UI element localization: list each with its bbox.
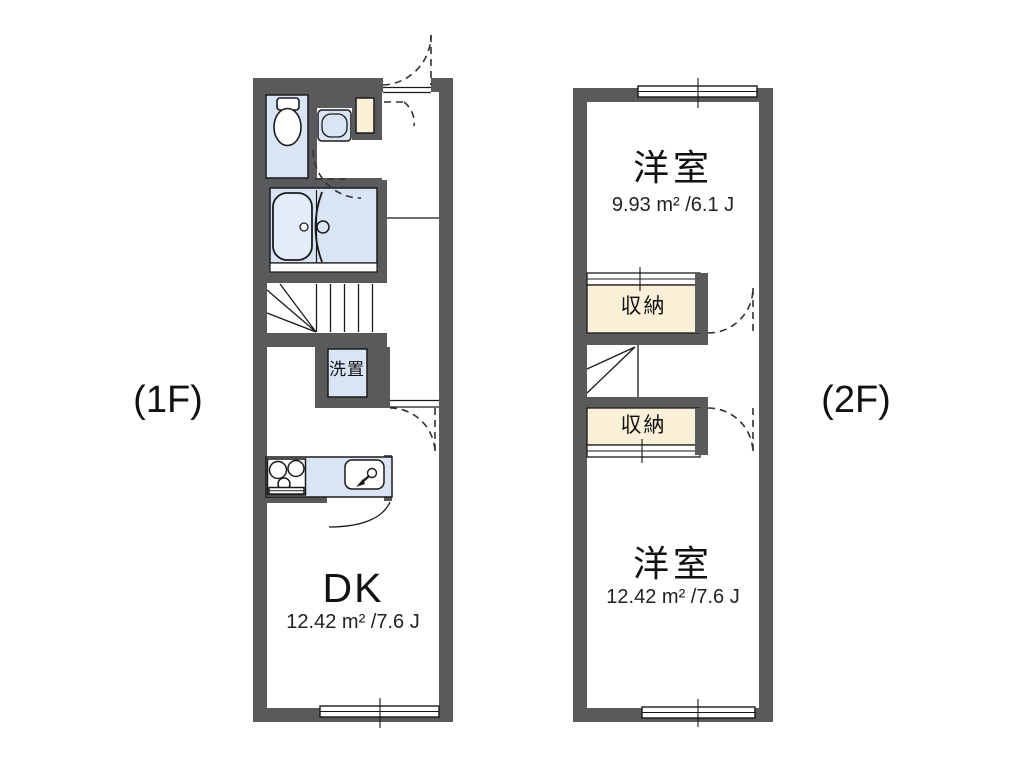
entry-inner-door	[384, 102, 414, 126]
storage-lower-top-wall	[573, 397, 708, 408]
upper-room-label: 洋室	[587, 148, 759, 188]
window-1f-bottom	[320, 698, 439, 728]
dk-door-arc	[390, 408, 435, 453]
laundry-label: 洗置	[324, 361, 370, 380]
floor2-label: (2F)	[796, 380, 916, 422]
storage-lower-door-arc	[708, 408, 753, 453]
bath-door-knob-icon	[317, 221, 329, 233]
lower-room-area: 12.42 m² /7.6 J	[587, 586, 759, 608]
stove-icon	[268, 459, 306, 495]
storage-lower-label: 収納	[587, 414, 700, 437]
kitchen-curve	[329, 502, 390, 527]
lower-room-label: 洋室	[587, 544, 759, 584]
window-2f-top	[638, 78, 757, 108]
bath-drain-icon	[300, 223, 308, 231]
storage-upper-label: 収納	[587, 295, 700, 318]
storage-upper-door-arc	[708, 288, 753, 333]
entrance-opening	[383, 77, 431, 93]
floor1-label: (1F)	[108, 380, 228, 422]
sink-icon	[345, 460, 384, 489]
storage-upper-bottom-wall	[573, 333, 708, 345]
window-2f-bottom	[642, 699, 755, 727]
floorplan-canvas: (1F) (2F) DK 12.42 m² /7.6 J 洗置 洋室 9.93 …	[0, 0, 1016, 772]
bath-step	[270, 263, 377, 272]
stair-bottom-wall	[267, 333, 387, 347]
dk-room-area: 12.42 m² /7.6 J	[247, 611, 459, 633]
washroom-side-floor	[352, 140, 382, 178]
dk-doorway-lines	[390, 401, 439, 408]
upper-room-area: 9.93 m² /6.1 J	[587, 194, 759, 216]
staircase-1f	[267, 284, 373, 332]
floor2-door-arcs	[708, 288, 753, 453]
water-heater-box	[356, 98, 374, 133]
toilet-bowl	[274, 109, 301, 146]
dk-room-label: DK	[267, 566, 439, 611]
staircase-2f	[587, 345, 638, 397]
toilet-icon	[274, 98, 301, 146]
